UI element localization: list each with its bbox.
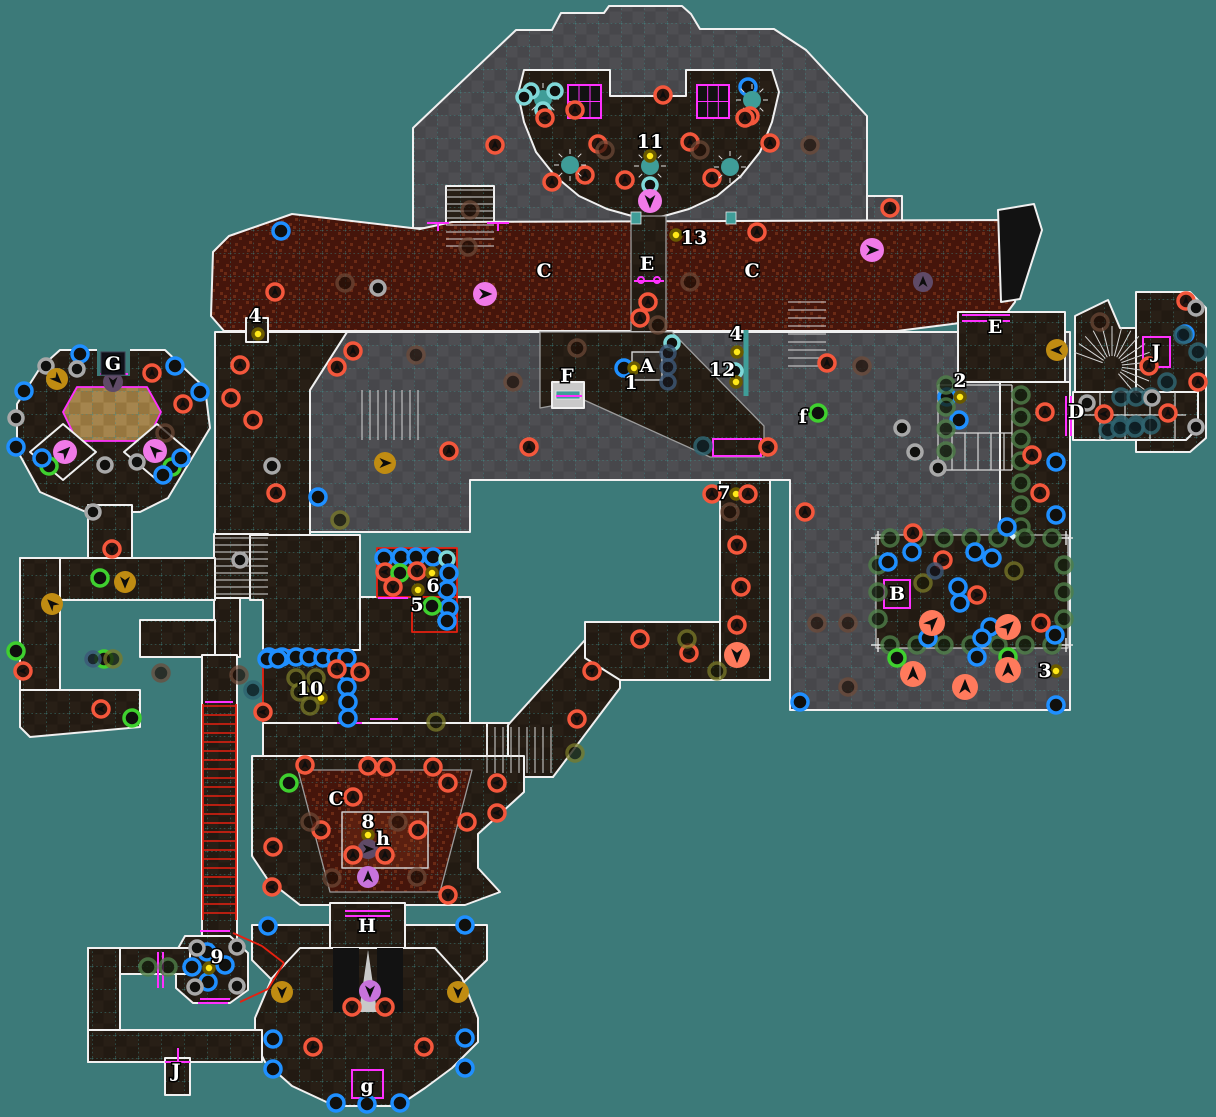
thing-enemy-small-orange [1037,404,1053,420]
thing-enemy-small-orange [377,999,393,1015]
thing-item-gray-ring [1189,420,1203,434]
thing-enemy-small-orange [487,137,503,153]
thing-marker-yellow-dot [1051,666,1061,676]
thing-faded-brown-ring [1092,314,1108,330]
thing-marker-yellow-dot [671,230,681,240]
thing-item-blue-ring [439,582,455,598]
thing-item-blue-ring [999,519,1015,535]
thing-item-blue-ring [8,439,24,455]
thing-item-blue-ring [173,450,189,466]
map-label-g: g [360,1075,373,1097]
thing-item-blue-ring [952,595,968,611]
thing-faded-teal-ring [695,438,711,454]
thing-faded-brown-ring [692,142,708,158]
thing-faded-navy-ring [661,360,675,374]
thing-enemy-small-orange [440,887,456,903]
map-label-12: 12 [709,359,735,381]
thing-item-gray-ring [98,458,112,472]
thing-faded-brown-ring [802,137,818,153]
thing-light-source [714,151,746,183]
automap: GCEC13114FA11242EJDf7B3561098hCHgJ [0,0,1216,1117]
thing-enemy-small-orange [1024,447,1040,463]
thing-faded-navy-ring [661,346,675,360]
thing-item-gray-ring [190,941,204,955]
map-label-2: 2 [953,370,966,392]
thing-faded-green-ring [1013,497,1029,513]
thing-enemy-small-orange [329,359,345,375]
thing-faded-brown-ring [337,275,353,291]
thing-enemy-small-orange [360,758,376,774]
thing-faded-olive-ring [428,714,444,730]
thing-teleport-magenta [860,238,884,262]
thing-faded-green-ring [1056,611,1072,627]
floor-col-left [214,598,240,657]
map-label-h: h [376,828,390,850]
thing-enemy-gold [41,593,63,615]
thing-enemy-small-orange [489,805,505,821]
thing-faded-green-ring [870,611,886,627]
thing-marker-yellow-dot [955,392,965,402]
thing-item-blue-ring [880,554,896,570]
thing-item-blue-ring [155,467,171,483]
thing-faded-brown-ring [390,814,406,830]
thing-item-green-ring [281,775,297,791]
thing-item-blue-ring [192,384,208,400]
thing-enemy-small-orange [632,631,648,647]
thing-item-cyan-ring [548,84,562,98]
thing-item-green-ring [8,643,24,659]
thing-faded-olive-ring [1006,563,1022,579]
thing-item-gray-ring [130,455,144,469]
thing-enemy-small-orange [819,355,835,371]
lift-marker [631,212,641,224]
thing-enemy-dark-purple [913,272,933,292]
thing-faded-green-ring [870,584,886,600]
thing-faded-brown-ring [157,425,173,441]
thing-item-blue-ring [984,550,1000,566]
thing-enemy-small-orange [1032,485,1048,501]
thing-faded-olive-ring [105,651,121,667]
thing-item-green-ring [889,650,905,666]
thing-faded-brown-ring [722,504,738,520]
thing-item-blue-ring [16,383,32,399]
thing-enemy-small-orange [264,879,280,895]
map-label-9: 9 [210,946,223,968]
thing-item-blue-ring [328,1095,344,1111]
thing-faded-brown-ring [324,870,340,886]
thing-item-blue-ring [265,1061,281,1077]
thing-item-blue-ring [457,1030,473,1046]
thing-enemy-small-orange [344,999,360,1015]
thing-item-blue-ring [34,450,50,466]
thing-faded-green-ring [1013,409,1029,425]
thing-teleport-magenta [143,439,167,463]
thing-enemy-small-orange [489,775,505,791]
thing-faded-brown-ring [597,142,613,158]
thing-faded-green-ring [938,443,954,459]
thing-faded-olive-ring [332,512,348,528]
thing-enemy-large-salmon [919,610,945,636]
thing-item-blue-ring [950,579,966,595]
thing-faded-teal-ring [1175,327,1191,343]
thing-enemy-small-orange [1096,406,1112,422]
floor-loop-bottom [20,690,140,737]
map-label-6: 6 [426,575,439,597]
thing-enemy-large-salmon [900,661,926,687]
map-canvas[interactable]: GCEC13114FA11242EJDf7B3561098hCHgJ [0,0,1216,1117]
thing-enemy-small-orange [655,87,671,103]
thing-enemy-gold [271,981,293,1003]
thing-enemy-gold [1046,339,1068,361]
thing-teleport-violet [359,980,381,1002]
thing-enemy-small-orange [425,759,441,775]
thing-item-blue-ring [1048,697,1064,713]
thing-enemy-small-orange [749,224,765,240]
thing-enemy-large-salmon [952,674,978,700]
thing-item-blue-ring [1048,454,1064,470]
thing-enemy-small-orange [345,789,361,805]
thing-item-blue-ring [967,544,983,560]
map-label-4: 4 [248,305,261,327]
thing-faded-green-ring [938,377,954,393]
thing-enemy-small-orange [762,135,778,151]
map-label-13: 13 [681,227,707,249]
thing-faded-green-ring [1017,530,1033,546]
thing-enemy-gold [114,571,136,593]
thing-item-gray-ring [188,980,202,994]
thing-enemy-small-orange [537,110,553,126]
thing-enemy-small-orange [267,284,283,300]
map-label-C: C [328,788,343,810]
thing-enemy-small-orange [760,439,776,455]
thing-enemy-small-orange [265,839,281,855]
map-label-5: 5 [410,594,423,616]
floor-red-corridor-band [211,214,1022,331]
thing-faded-teal-ring [1159,374,1175,390]
thing-enemy-small-orange [1160,405,1176,421]
thing-item-gray-ring [895,421,909,435]
thing-enemy-small-orange [882,200,898,216]
thing-item-blue-ring [273,223,289,239]
floor-dark-triangle [998,204,1042,302]
thing-enemy-small-orange [345,847,361,863]
thing-faded-brown-ring [840,679,856,695]
thing-faded-green-ring [938,399,954,415]
thing-faded-olive-ring [915,575,931,591]
thing-enemy-small-orange [255,704,271,720]
thing-item-blue-ring [1048,507,1064,523]
thing-faded-brown-ring [462,202,478,218]
thing-enemy-small-orange [459,814,475,830]
thing-enemy-small-orange [175,396,191,412]
thing-enemy-small-orange [268,485,284,501]
thing-enemy-small-orange [797,504,813,520]
floor-loop-stub [140,620,215,657]
thing-faded-green-ring [1044,530,1060,546]
thing-faded-green-ring [936,637,952,653]
thing-item-blue-ring [792,694,808,710]
thing-item-green-ring [92,570,108,586]
thing-enemy-small-orange [441,443,457,459]
thing-item-green-ring [810,405,826,421]
map-label-11: 11 [637,131,663,153]
thing-item-blue-ring [270,651,286,667]
thing-teleport-violet [357,866,379,888]
thing-enemy-small-orange [410,822,426,838]
thing-item-blue-ring [974,630,990,646]
thing-faded-navy-ring [86,652,100,666]
thing-enemy-small-orange [223,390,239,406]
thing-item-blue-ring [340,710,356,726]
thing-faded-teal-ring [1143,417,1159,433]
thing-enemy-small-orange [104,541,120,557]
map-label-H: H [358,915,376,937]
lift-marker [726,212,736,224]
thing-faded-brown-ring [408,347,424,363]
thing-item-gray-ring [1189,301,1203,315]
thing-enemy-gold [46,368,68,390]
thing-faded-brown-ring [153,665,169,681]
thing-faded-green-ring [882,530,898,546]
map-label-F: F [560,365,574,387]
thing-enemy-small-orange [617,172,633,188]
thing-enemy-small-orange [632,310,648,326]
thing-item-blue-ring [167,358,183,374]
thing-enemy-small-orange [329,661,345,677]
thing-faded-green-ring [160,959,176,975]
map-label-C: C [744,260,759,282]
thing-enemy-small-orange [144,365,160,381]
thing-enemy-large-salmon [995,614,1021,640]
thing-faded-navy-ring [928,564,942,578]
thing-item-blue-ring [904,544,920,560]
thing-faded-brown-ring [569,340,585,356]
thing-enemy-small-orange [737,110,753,126]
thing-enemy-small-orange [640,294,656,310]
thing-enemy-small-orange [729,537,745,553]
thing-faded-brown-ring [302,814,318,830]
thing-item-blue-ring [265,1031,281,1047]
thing-teleport-magenta [638,189,662,213]
map-label-E: E [988,316,1002,338]
thing-enemy-small-orange [1190,374,1206,390]
thing-enemy-small-orange [740,486,756,502]
map-label-10: 10 [297,678,323,700]
thing-enemy-small-orange [1033,615,1049,631]
thing-faded-green-ring [1013,387,1029,403]
thing-item-blue-ring [1047,627,1063,643]
map-label-4: 4 [729,323,742,345]
thing-enemy-small-orange [345,343,361,359]
map-label-J: J [1150,341,1161,363]
thing-faded-green-ring [1056,584,1072,600]
thing-item-blue-ring [184,959,200,975]
map-label-G: G [105,353,121,375]
thing-faded-brown-ring [460,239,476,255]
thing-faded-brown-ring [650,317,666,333]
thing-marker-yellow-dot [732,347,742,357]
thing-faded-green-ring [1013,431,1029,447]
thing-enemy-small-orange [378,759,394,775]
thing-item-gray-ring [230,940,244,954]
thing-faded-brown-ring [809,615,825,631]
thing-enemy-small-orange [584,663,600,679]
thing-faded-navy-ring [661,375,675,389]
thing-faded-brown-ring [854,358,870,374]
map-label-E: E [640,253,654,275]
thing-item-cyan-ring [517,90,531,104]
thing-faded-green-ring [1013,475,1029,491]
thing-enemy-large-salmon [724,642,750,668]
map-label-C: C [536,260,551,282]
thing-faded-olive-ring [679,631,695,647]
thing-item-gray-ring [9,411,23,425]
thing-enemy-small-orange [15,663,31,679]
thing-item-gray-ring [371,281,385,295]
thing-marker-yellow-dot [253,329,263,339]
thing-item-blue-ring [260,918,276,934]
thing-item-gray-ring [70,362,84,376]
thing-faded-teal-ring [1190,344,1206,360]
thing-enemy-small-orange [969,587,985,603]
thing-enemy-small-orange [305,1039,321,1055]
thing-enemy-large-salmon [995,657,1021,683]
thing-item-gray-ring [908,445,922,459]
thing-light-source [554,149,586,181]
thing-item-gray-ring [86,505,100,519]
thing-item-gray-ring [265,459,279,473]
map-label-8: 8 [361,811,374,833]
thing-faded-green-ring [1056,557,1072,573]
thing-item-blue-ring [457,1060,473,1076]
thing-enemy-small-orange [440,775,456,791]
thing-enemy-gold [447,981,469,1003]
thing-enemy-small-orange [352,664,368,680]
map-label-J: J [170,1060,181,1082]
thing-enemy-small-orange [704,170,720,186]
thing-teleport-magenta [473,282,497,306]
thing-enemy-gold [374,452,396,474]
thing-faded-brown-ring [231,667,247,683]
thing-faded-olive-ring [567,745,583,761]
thing-enemy-small-orange [232,357,248,373]
thing-faded-green-ring [1017,637,1033,653]
thing-faded-olive-ring [302,698,318,714]
thing-enemy-small-orange [409,563,425,579]
thing-item-gray-ring [1145,391,1159,405]
thing-enemy-small-orange [569,711,585,727]
thing-enemy-small-orange [729,617,745,633]
thing-faded-green-ring [140,959,156,975]
thing-faded-teal-ring [245,682,261,698]
thing-item-blue-ring [340,694,356,710]
thing-enemy-small-orange [733,579,749,595]
thing-enemy-small-orange [93,701,109,717]
thing-item-blue-ring [969,649,985,665]
floor-red-hatch-corridor [202,655,237,950]
thing-faded-brown-ring [409,869,425,885]
thing-faded-olive-ring [709,663,725,679]
thing-item-blue-ring [392,1095,408,1111]
thing-faded-green-ring [936,530,952,546]
thing-item-gray-ring [230,979,244,993]
thing-faded-green-ring [938,421,954,437]
thing-faded-brown-ring [682,274,698,290]
map-label-B: B [889,583,905,605]
map-label-A: A [639,355,655,377]
thing-item-blue-ring [439,613,455,629]
thing-item-blue-ring [441,565,457,581]
thing-item-green-ring [424,598,440,614]
thing-item-blue-ring [72,346,88,362]
thing-enemy-small-orange [297,757,313,773]
thing-enemy-small-orange [521,439,537,455]
thing-faded-brown-ring [840,615,856,631]
thing-item-gray-ring [931,461,945,475]
thing-item-gray-ring [233,553,247,567]
thing-item-blue-ring [310,489,326,505]
thing-enemy-small-orange [905,525,921,541]
thing-enemy-small-orange [567,102,583,118]
thing-enemy-small-orange [245,412,261,428]
map-label-3: 3 [1038,660,1051,682]
thing-enemy-small-orange [416,1039,432,1055]
thing-item-blue-ring [457,917,473,933]
thing-item-green-ring [124,710,140,726]
map-label-D: D [1068,401,1084,423]
thing-enemy-small-orange [385,579,401,595]
map-label-1: 1 [624,372,637,394]
thing-faded-teal-ring [1127,420,1143,436]
thing-item-blue-ring [359,1096,375,1112]
thing-enemy-small-orange [544,174,560,190]
thing-faded-brown-ring [505,374,521,390]
map-label-7: 7 [717,482,730,504]
